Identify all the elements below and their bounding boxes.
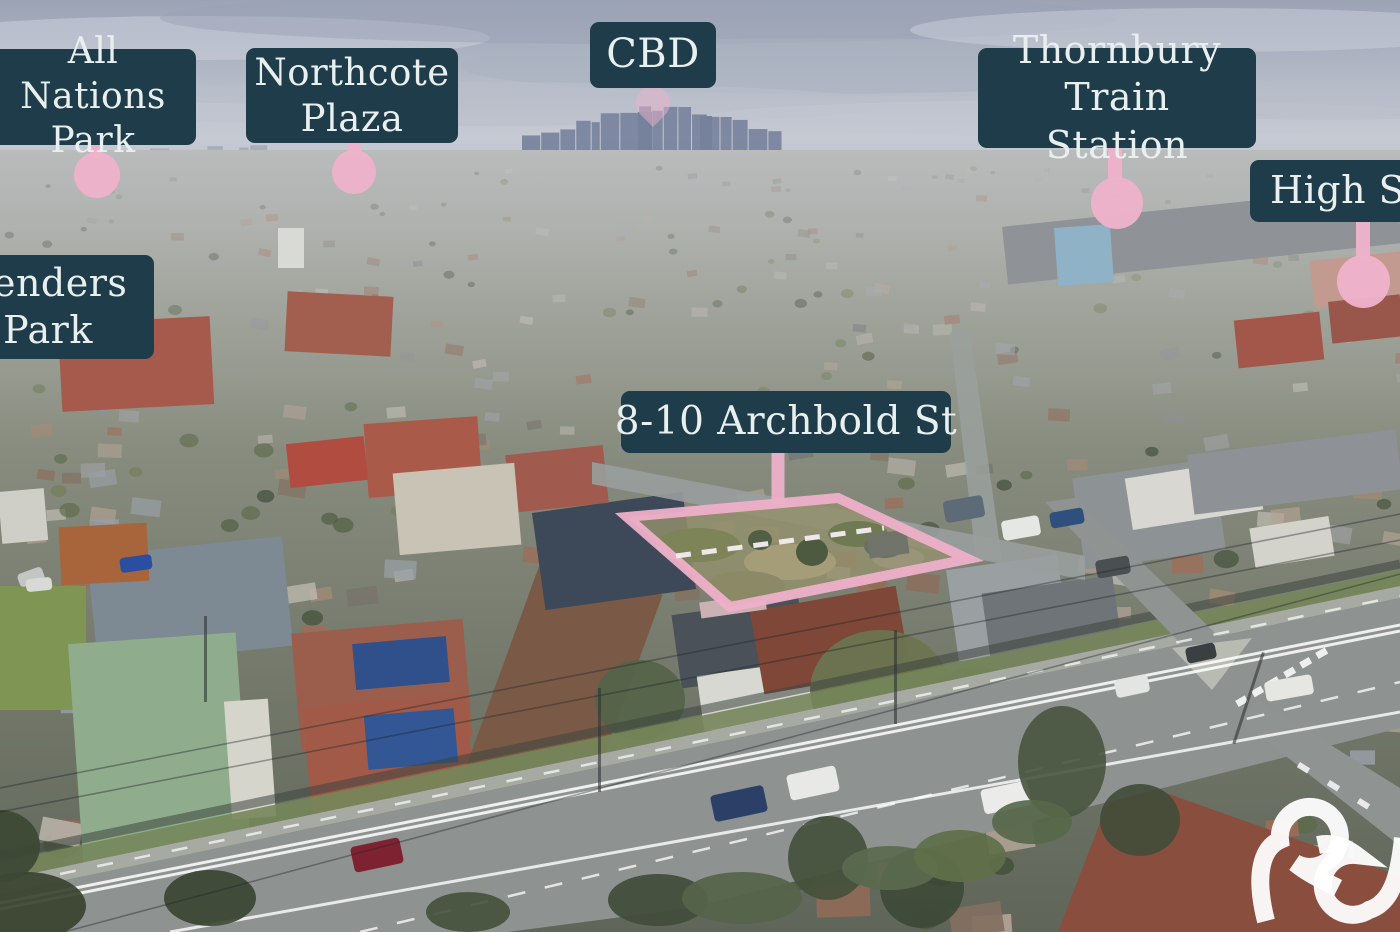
callout-label: CBD — [606, 30, 700, 80]
callout-high-street: High Street — [1250, 160, 1400, 222]
callout-label: All Nations Park — [0, 30, 186, 164]
callout-label: 8-10 Archbold St — [615, 398, 957, 446]
callout-label: Northcote Plaza — [254, 50, 449, 142]
northcote-plaza-pin-icon — [332, 150, 376, 194]
callout-label: Penders Park — [0, 260, 144, 354]
callout-thornbury-train-station: Thornbury Train Station — [978, 48, 1256, 148]
callout-penders-park: Penders Park — [0, 255, 154, 359]
callout-label: Thornbury Train Station — [988, 27, 1246, 168]
callout-all-nations-park: All Nations Park — [0, 49, 196, 145]
callout-northcote-plaza: Northcote Plaza — [246, 48, 458, 143]
annotation-overlay: All Nations Park Northcote Plaza CBD Tho… — [0, 0, 1400, 932]
callout-cbd: CBD — [590, 22, 716, 88]
high-street-stem — [1356, 220, 1370, 258]
high-street-pin-icon — [1337, 255, 1390, 308]
callout-label: High Street — [1270, 167, 1400, 214]
callout-property-address: 8-10 Archbold St — [621, 391, 951, 453]
thornbury-station-pin-icon — [1091, 177, 1143, 229]
